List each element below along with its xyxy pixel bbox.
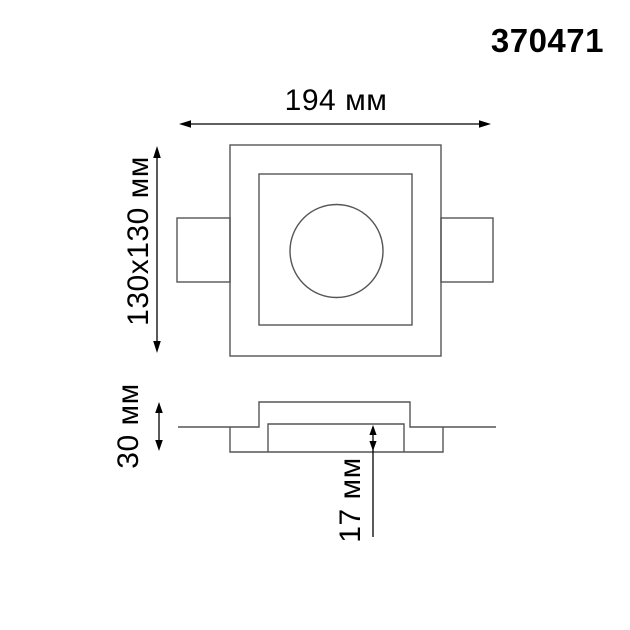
side-profile-body: [230, 427, 443, 452]
height-dimension-label: 30 мм: [114, 383, 144, 468]
width-dimension-arrow: [179, 120, 491, 128]
side-profile-ceiling-line: [178, 402, 496, 427]
fixture-inner-frame: [259, 174, 412, 325]
width-dimension-label: 194 мм: [285, 86, 388, 116]
side-profile-recess: [268, 424, 404, 452]
top-view: [177, 145, 493, 356]
cutout-dimension-label: 130x130 мм: [124, 156, 154, 326]
height-dimension-arrow: [155, 402, 163, 451]
left-mounting-tab: [177, 218, 230, 282]
lamp-opening: [290, 205, 383, 298]
dimension-diagram: 370471: [0, 0, 630, 630]
depth-dimension-leader: [369, 425, 376, 537]
side-view: [178, 402, 496, 452]
depth-dimension-label: 17 мм: [336, 457, 366, 542]
right-mounting-tab: [441, 218, 493, 282]
